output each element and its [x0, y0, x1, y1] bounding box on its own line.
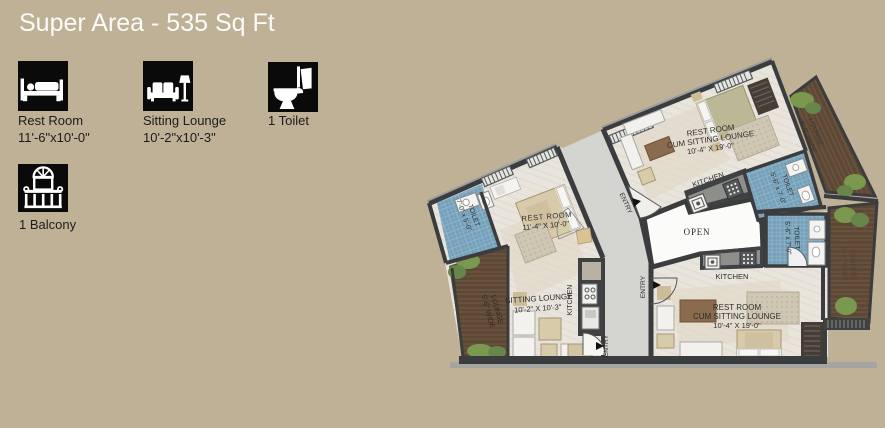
- svg-text:10'-2"x10'-3": 10'-2"x10'-3": [143, 130, 216, 145]
- svg-text:CUM SITTING LOUNGE: CUM SITTING LOUNGE: [693, 312, 781, 321]
- svg-text:11'-6"x10'-0": 11'-6"x10'-0": [18, 130, 90, 145]
- svg-text:1 Balcony: 1 Balcony: [19, 217, 77, 232]
- svg-text:Rest Room: Rest Room: [18, 113, 83, 128]
- svg-text:TOILET: TOILET: [792, 226, 800, 249]
- svg-text:1 Toilet: 1 Toilet: [268, 113, 309, 128]
- svg-text:ENTRY: ENTRY: [603, 334, 610, 357]
- svg-text:Sitting Lounge: Sitting Lounge: [143, 113, 226, 128]
- svg-text:REST ROOM: REST ROOM: [713, 303, 762, 312]
- svg-text:KITCHEN: KITCHEN: [716, 272, 749, 281]
- svg-text:10'-4" X 19'-0": 10'-4" X 19'-0": [713, 321, 761, 330]
- svg-text:ENTRY: ENTRY: [640, 275, 647, 298]
- svg-text:Super Area - 535 Sq Ft: Super Area - 535 Sq Ft: [19, 9, 275, 37]
- svg-text:OPEN: OPEN: [684, 227, 711, 237]
